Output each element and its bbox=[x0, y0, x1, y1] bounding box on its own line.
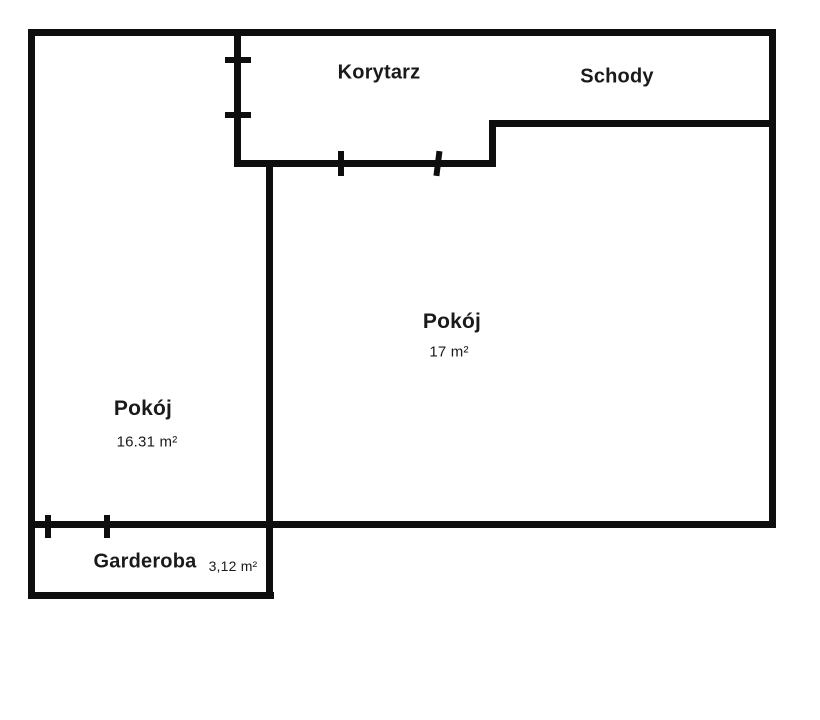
wall-step bbox=[489, 120, 496, 167]
wall-korytarz-left bbox=[234, 29, 241, 167]
wall-room-separator bbox=[266, 160, 273, 599]
room-area-garderoba: 3,12 m² bbox=[209, 558, 258, 574]
wall-outer-left bbox=[28, 29, 35, 599]
door-tick-icon bbox=[104, 515, 110, 538]
room-label-garderoba: Garderoba bbox=[94, 551, 197, 574]
door-tick-icon bbox=[225, 57, 251, 63]
room-area-pokoj-main: 17 m² bbox=[429, 344, 468, 361]
wall-main-bottom bbox=[28, 521, 776, 528]
room-label-schody: Schody bbox=[580, 66, 653, 89]
room-label-pokoj-left: Pokój bbox=[114, 397, 172, 421]
wall-outer-right bbox=[769, 29, 776, 528]
room-label-pokoj-main: Pokój bbox=[423, 310, 481, 334]
wall-schody-bottom bbox=[489, 120, 776, 127]
wall-garderoba-bottom bbox=[28, 592, 274, 599]
door-tick-icon bbox=[225, 112, 251, 118]
floorplan-walls bbox=[0, 0, 820, 720]
floorplan: Korytarz Schody Pokój 17 m² Pokój 16.31 … bbox=[0, 0, 820, 720]
wall-korytarz-bottom bbox=[234, 160, 496, 167]
door-tick-icon bbox=[338, 151, 344, 176]
door-tick-icon bbox=[45, 515, 51, 538]
room-label-korytarz: Korytarz bbox=[338, 62, 421, 85]
wall-outer-top bbox=[28, 29, 776, 36]
room-area-pokoj-left: 16.31 m² bbox=[117, 434, 178, 451]
